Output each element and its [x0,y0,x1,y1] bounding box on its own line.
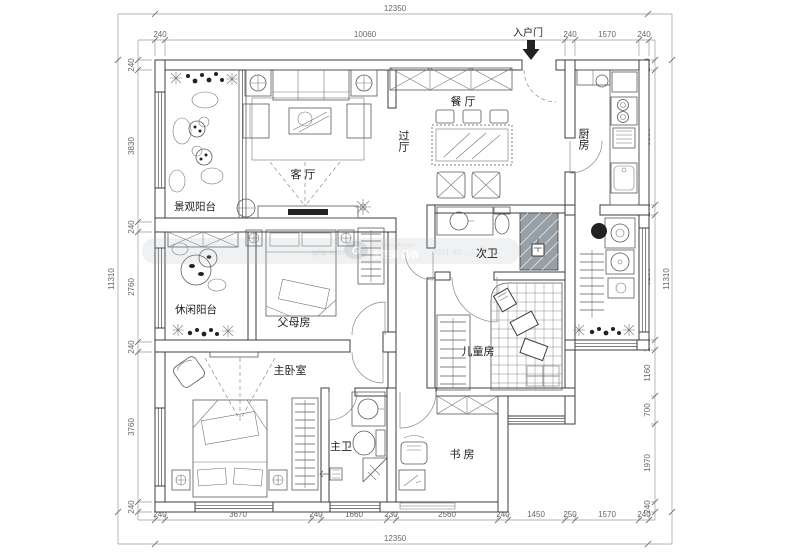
watermark-site: …gzip.com [304,248,344,257]
pillow [233,468,262,486]
dim-top-3: 1570 [598,30,616,39]
dim-left-0: 240 [127,58,136,72]
window-laundry-right [639,228,649,332]
dim-left-1: 3830 [127,137,136,155]
stone [201,168,223,184]
floorplan-sheet: 12350 240 10060 240 1570 240 12350 240 3… [0,0,800,560]
dim-right-6: 700 [643,403,652,417]
dim-left-3: 2760 [127,278,136,296]
dim-top-0: 240 [153,30,167,39]
room-label-study: 书 房 [449,448,474,461]
projection-lines [205,358,275,420]
window-master-bath [330,502,380,512]
flower-pot-2 [192,146,212,165]
walls [155,60,649,512]
drying-rack [580,250,604,318]
dim-right-5: 1160 [643,364,652,382]
vanity-1 [352,392,385,426]
lounge-chair-left [437,172,465,198]
parents-room-door [352,302,385,335]
laundry-sink [608,278,634,298]
stone [173,118,191,144]
dim-left-5: 3760 [127,418,136,436]
room-label-view-balcony: 景观阳台 [174,200,216,213]
plant-band-laundry [573,324,635,336]
toilet-1 [353,430,385,456]
kitchen-sink [611,163,637,193]
nightstand-lamp [269,470,287,490]
dim-bottom-7: 1450 [527,510,545,519]
accent-chair [171,355,206,390]
dim-right-total: 11310 [662,268,671,290]
watermark-brand-en: Golden Mango [372,242,415,249]
closet-top [390,68,512,90]
dim-right-7: 1970 [643,454,652,472]
washing-machine [591,218,635,248]
master-bed [193,400,267,497]
throw-blanket [201,411,258,444]
dim-left-6: 240 [127,500,136,514]
watermark-brand-cn: 金芒果 装饰 [371,249,420,260]
stone [192,92,218,108]
room-label-kitchen: 厨房 [577,128,590,151]
lounge-chair-right [472,172,500,198]
stove [611,97,637,125]
pillow [510,311,538,336]
kids-room-furniture [437,283,562,390]
dining-chair [436,110,454,123]
nightstand-lamp [172,470,190,490]
dim-top-2: 240 [563,30,577,39]
pillow [520,338,548,360]
dim-bottom-total: 12350 [384,534,407,543]
study-door [400,392,436,428]
master-wardrobe [292,398,318,490]
dim-left-2: 240 [127,220,136,234]
entry-arrow-icon [523,40,540,60]
shower-corner [363,458,387,482]
laundry-basket [591,223,607,239]
master-bedroom-door [352,352,383,383]
room-label-master: 主卧室 [274,363,307,377]
flower-pot-1 [189,117,209,137]
throw-blanket [278,279,329,309]
plant-band-leisure [172,324,234,337]
master-bath-door [329,392,357,420]
kitchen-cabinet [577,70,610,85]
study-desk [399,470,425,490]
dim-top-1: 10060 [354,30,377,39]
room-label-parents: 父母房 [278,316,311,329]
watermark-logo: G [352,245,361,257]
dining-chair [490,110,508,123]
window-platform [508,416,565,424]
view-balcony-deco [169,72,238,192]
floorplan-drawing: 12350 240 10060 240 1570 240 12350 240 3… [0,0,800,560]
living-room-furniture [237,70,377,218]
dim-left-total: 11310 [107,268,116,290]
dim-bottom-8: 250 [563,510,577,519]
tv [288,209,328,215]
water-heater [606,250,634,274]
pillow [197,468,226,486]
study-closet [437,396,498,414]
armchair-right [347,104,371,138]
plant-beside-tv [355,199,371,215]
window-master-bedroom-left [155,408,165,486]
dim-right-8: 240 [643,500,652,514]
plant-band-top [170,72,238,85]
window-master-bedroom-bottom [195,502,273,512]
room-label-master-bath: 主卫 [330,440,352,453]
room-label-leisure-balcony: 休闲阳台 [175,303,217,316]
laundry-balcony [573,218,635,336]
dining-table [432,125,512,165]
dining-chair [463,110,481,123]
cutting-board [613,128,635,148]
study-chair [401,436,427,465]
entry-mark: 入户门 [513,26,543,60]
dim-left-4: 240 [127,340,136,354]
entry-door-swing [524,70,556,102]
window-view-balcony [155,92,165,188]
fridge [612,72,637,92]
armchair-left [243,104,269,138]
watermark: …gzip.com G Golden Mango 金芒果 装饰 0371-63…… [142,238,520,264]
room-label-hall: 过厅 [397,130,410,152]
entry-label: 入户门 [513,26,543,39]
dim-top-4: 240 [637,30,651,39]
watermark-phone: 0371-63…… [432,248,477,257]
window-laundry-bottom [575,340,637,350]
room-label-kids: 儿童房 [462,344,495,358]
shower-area [520,213,558,270]
dim-top-total: 12350 [384,4,407,13]
room-label-living: 客 厅 [290,167,315,181]
sofa [273,70,349,100]
projector-screen [210,352,258,357]
dim-bottom-9: 1570 [598,510,616,519]
room-label-dining: 餐 厅 [450,94,475,108]
room-label-second-bath: 次卫 [476,246,498,260]
stone [169,170,185,192]
